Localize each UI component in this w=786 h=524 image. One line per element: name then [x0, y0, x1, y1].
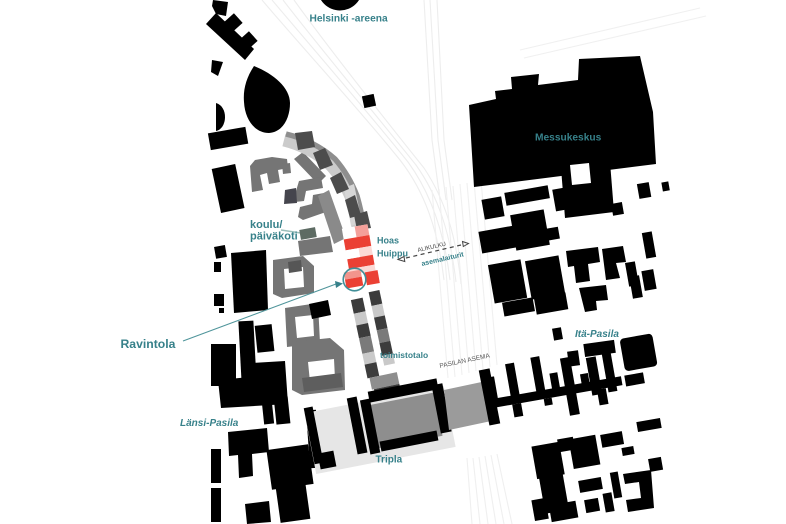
- svg-text:Messukeskus: Messukeskus: [535, 133, 602, 144]
- svg-text:Helsinki -areena: Helsinki -areena: [310, 14, 388, 25]
- svg-text:päiväkoti: päiväkoti: [250, 231, 298, 243]
- svg-text:toimistotalo: toimistotalo: [380, 350, 428, 360]
- svg-text:koulu/: koulu/: [250, 219, 282, 231]
- svg-text:Itä-Pasila: Itä-Pasila: [575, 329, 619, 340]
- svg-text:Länsi-Pasila: Länsi-Pasila: [180, 418, 239, 429]
- svg-text:Tripla: Tripla: [376, 455, 403, 466]
- svg-text:Ravintola: Ravintola: [121, 337, 176, 351]
- svg-text:Hoas: Hoas: [377, 236, 399, 246]
